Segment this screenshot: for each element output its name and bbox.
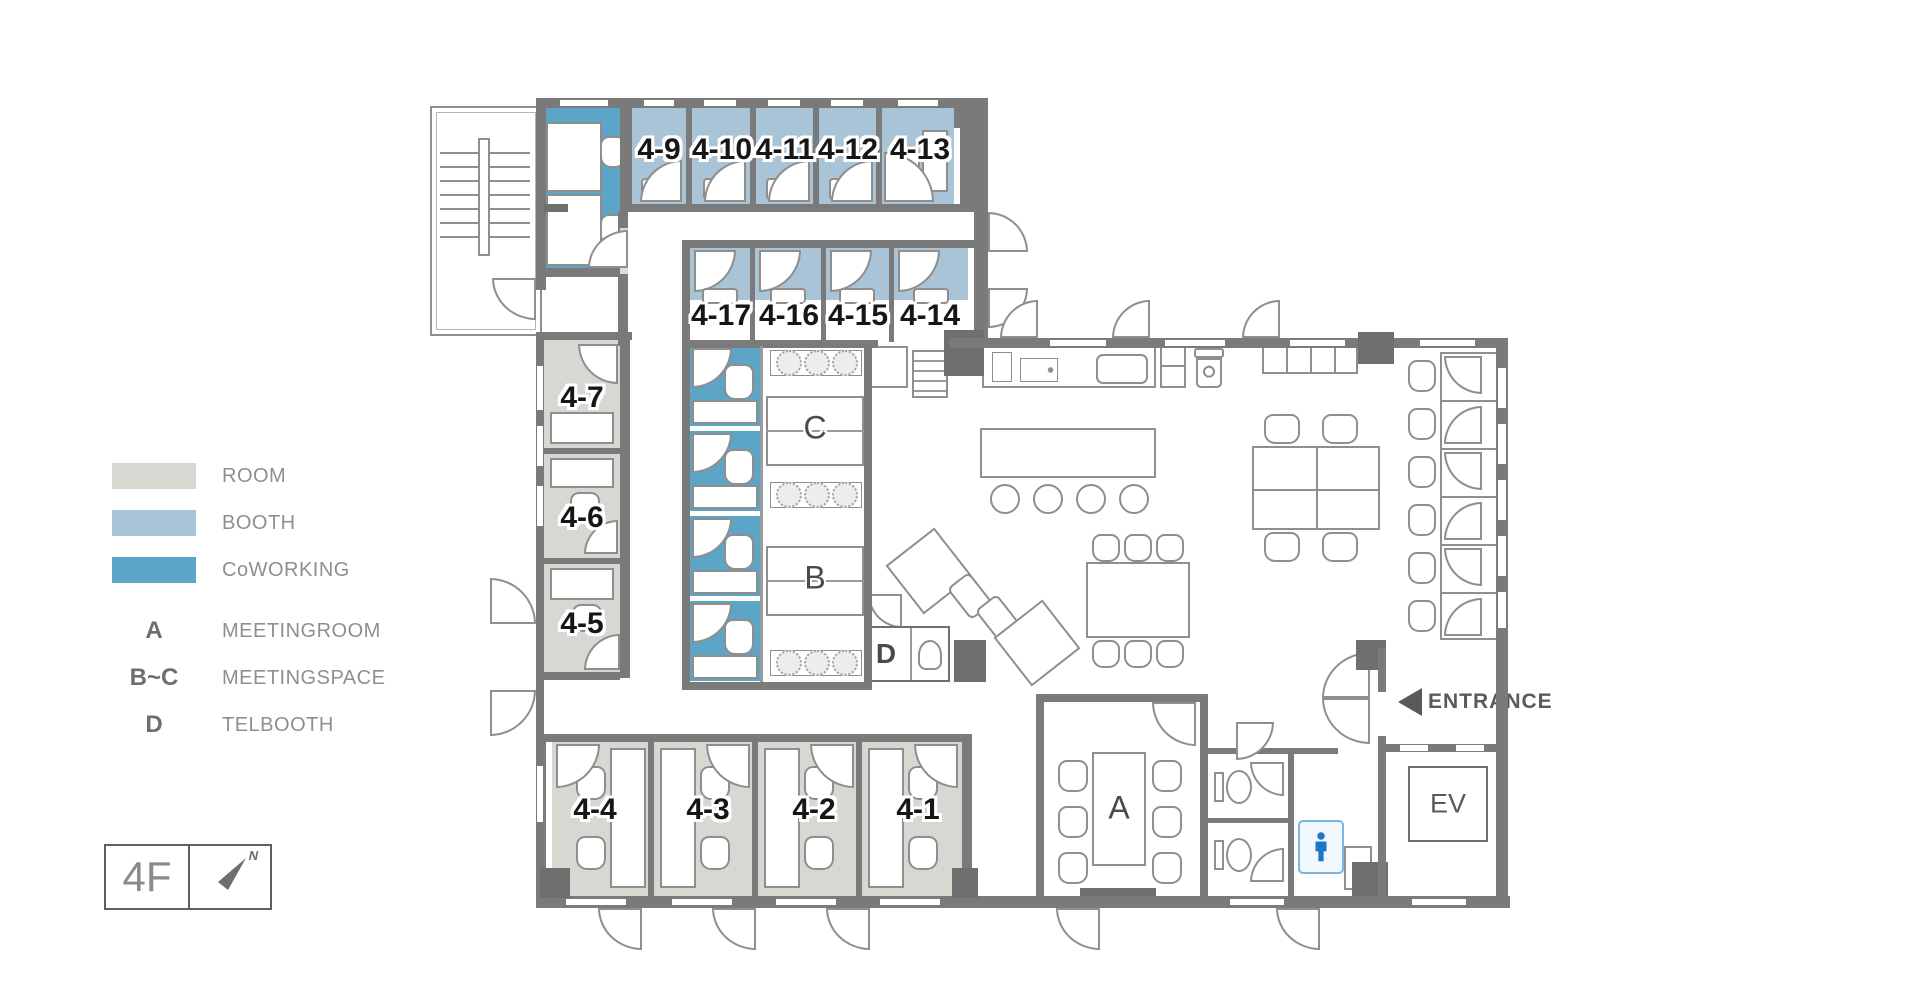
chair: [1322, 532, 1358, 562]
room-label: 4-3: [686, 793, 729, 827]
door-arc: [1250, 848, 1284, 882]
window: [1456, 745, 1484, 751]
wall: [682, 682, 872, 690]
door-arc: [988, 212, 1028, 252]
chair: [1408, 360, 1436, 392]
wall: [1208, 748, 1338, 754]
legend-item-room: ROOM: [112, 463, 412, 489]
plant-icon: [832, 350, 858, 376]
window: [704, 100, 736, 106]
chair: [918, 640, 942, 670]
copier-icon: [912, 350, 948, 398]
legend-item-booth: BOOTH: [112, 510, 412, 536]
door-arc: [1112, 300, 1150, 338]
room-label: 4-2: [792, 793, 835, 827]
wall: [682, 240, 690, 346]
room-color-swatch: [112, 463, 196, 489]
window: [1050, 340, 1106, 346]
chair: [724, 619, 754, 655]
door-arc: [598, 908, 642, 950]
chair: [1408, 504, 1436, 536]
coworking-color-swatch: [112, 557, 196, 583]
room-label: 4-1: [896, 793, 939, 827]
wall-block: [954, 640, 986, 682]
room-label: 4-17: [691, 299, 751, 333]
room-label: 4-6: [560, 501, 603, 535]
restroom-men-icon: [1298, 820, 1344, 874]
wall: [856, 742, 862, 902]
wall-block: [1358, 332, 1394, 364]
locker-shelf: [1262, 344, 1358, 374]
wall: [1200, 694, 1208, 902]
desk: [692, 400, 758, 424]
room-label: 4-11: [756, 133, 814, 167]
door-arc: [712, 908, 756, 950]
wall: [752, 742, 758, 902]
room-label: 4-16: [759, 299, 819, 333]
key-label: MEETINGSPACE: [222, 667, 385, 690]
chair: [1092, 640, 1120, 668]
room-label: 4-15: [828, 299, 888, 333]
wall: [628, 204, 988, 212]
chair: [724, 364, 754, 400]
desk: [692, 655, 758, 679]
key-letter: B~C: [112, 664, 196, 692]
wall: [682, 240, 974, 248]
stool-chair: [990, 484, 1020, 514]
room-label: 4-5: [560, 607, 603, 641]
window: [898, 100, 938, 106]
plant-icon: [776, 350, 802, 376]
window: [768, 100, 800, 106]
wall: [536, 268, 628, 277]
chair: [1322, 414, 1358, 444]
window: [1498, 424, 1506, 464]
telbooth-label: D: [876, 638, 896, 670]
legend-key-d: D TELBOOTH: [112, 711, 412, 739]
room-label: 4-10: [692, 133, 752, 167]
room-label: 4-13: [890, 133, 950, 167]
chair: [700, 836, 730, 870]
wall: [648, 742, 654, 902]
window: [1412, 899, 1466, 905]
door-arc: [490, 578, 536, 624]
wall: [620, 332, 630, 678]
chair: [1058, 760, 1088, 792]
plant-icon: [776, 650, 802, 676]
desk: [550, 412, 614, 444]
window: [537, 486, 543, 526]
microwave-icon: [1020, 358, 1058, 382]
key-letter: A: [112, 617, 196, 645]
wall: [626, 104, 632, 204]
floor-label: 4F: [106, 846, 190, 908]
chair: [1152, 852, 1182, 884]
chair: [1264, 532, 1300, 562]
door-arc: [868, 594, 902, 628]
legend-label: BOOTH: [222, 512, 296, 535]
window: [644, 100, 674, 106]
entrance-arrow-icon: [1398, 688, 1422, 716]
wall: [889, 248, 894, 342]
door-arc: [826, 908, 870, 950]
window: [776, 899, 836, 905]
chair: [1408, 552, 1436, 584]
six-seat-table: [1086, 562, 1190, 638]
window: [566, 899, 626, 905]
meeting-space-b-label: B: [804, 560, 825, 597]
door-arc: [1236, 722, 1274, 760]
wall: [682, 348, 690, 690]
window: [1498, 536, 1506, 576]
wall-block: [952, 868, 978, 898]
chair: [576, 836, 606, 870]
room-label: 4-7: [560, 381, 603, 415]
toilet-icon: [1214, 772, 1224, 802]
window: [1165, 340, 1225, 346]
window: [1400, 745, 1428, 751]
four-seat-table: [1252, 446, 1380, 530]
wall: [1036, 694, 1208, 702]
chair: [1408, 456, 1436, 488]
key-label: TELBOOTH: [222, 714, 334, 737]
booth-color-swatch: [112, 510, 196, 536]
wall: [1208, 818, 1292, 823]
legend-label: CoWORKING: [222, 559, 350, 582]
window: [1498, 368, 1506, 408]
desk: [550, 458, 614, 488]
room-label: 4-12: [818, 133, 878, 167]
desk: [550, 568, 614, 600]
legend-key-a: A MEETINGROOM: [112, 617, 412, 645]
door-arc: [1056, 908, 1100, 950]
door-arc: [1152, 702, 1196, 746]
window: [672, 899, 732, 905]
wall: [536, 332, 632, 340]
door-arc: [490, 690, 536, 736]
water-cup-icon: [992, 352, 1012, 382]
plant-icon: [832, 482, 858, 508]
window: [1290, 340, 1345, 346]
compass: N: [190, 846, 270, 908]
plant-icon: [804, 482, 830, 508]
toilet-icon: [1226, 770, 1252, 804]
long-table: [980, 428, 1156, 478]
chair: [1058, 806, 1088, 838]
legend-item-coworking: CoWORKING: [112, 557, 412, 583]
wall-block: [544, 204, 568, 212]
room-label: 4-14: [900, 299, 960, 333]
chair: [724, 449, 754, 485]
table: [1194, 348, 1224, 358]
legend-key-bc: B~C MEETINGSPACE: [112, 664, 412, 692]
chair: [1058, 852, 1088, 884]
carrel-column: [1440, 352, 1498, 640]
wall: [864, 346, 872, 690]
plant-icon: [776, 482, 802, 508]
key-label: MEETINGROOM: [222, 620, 381, 643]
window: [1420, 340, 1475, 346]
window: [1230, 899, 1284, 905]
chair: [1152, 760, 1182, 792]
desk: [692, 570, 758, 594]
door-arc: [1322, 698, 1370, 744]
meeting-room-a-label: A: [1108, 790, 1129, 827]
wall: [1378, 752, 1386, 898]
stool-chair: [1076, 484, 1106, 514]
plant-icon: [804, 650, 830, 676]
stool-chair: [1119, 484, 1149, 514]
chair: [1408, 600, 1436, 632]
entrance-label: ENTRANCE: [1428, 690, 1553, 714]
chair: [1408, 408, 1436, 440]
chair: [1124, 534, 1152, 562]
fridge-icon: [1160, 344, 1186, 388]
meeting-space-c-label: C: [803, 410, 826, 447]
chair: [908, 836, 938, 870]
divider-line: [910, 628, 912, 680]
floor-tag: 4F N: [104, 844, 272, 910]
chair: [1092, 534, 1120, 562]
elevator-label: EV: [1430, 789, 1466, 820]
wall: [544, 558, 620, 564]
room-label: 4-4: [573, 793, 616, 827]
chair: [1264, 414, 1300, 444]
wall: [821, 248, 826, 342]
window: [537, 426, 543, 466]
chair: [804, 836, 834, 870]
wall: [1378, 648, 1386, 692]
desk: [546, 122, 602, 192]
toilet-icon: [1226, 838, 1252, 872]
wall: [682, 340, 878, 348]
desk: [692, 485, 758, 509]
stair-rail: [478, 138, 490, 256]
chair: [1124, 640, 1152, 668]
window: [1498, 592, 1506, 628]
wall: [544, 672, 620, 680]
plant-icon: [804, 350, 830, 376]
wall: [536, 98, 546, 290]
window: [1498, 480, 1506, 520]
chair: [1152, 806, 1182, 838]
table: [1196, 358, 1222, 388]
wall: [974, 98, 988, 346]
window: [560, 100, 608, 106]
wall-block: [540, 868, 570, 898]
window: [537, 366, 543, 410]
wall: [544, 448, 620, 454]
legend-label: ROOM: [222, 465, 286, 488]
wall: [1288, 748, 1294, 896]
divider-line: [760, 346, 763, 690]
wall: [1036, 694, 1044, 902]
plant-icon: [832, 650, 858, 676]
door-arc: [1276, 908, 1320, 950]
door-arc: [1242, 300, 1280, 338]
wall: [1378, 744, 1506, 752]
window: [880, 899, 940, 905]
legend: ROOM BOOTH CoWORKING A MEETINGROOM B~C M…: [112, 463, 412, 758]
window: [537, 766, 543, 822]
wall-block: [944, 330, 984, 376]
toilet-icon: [1214, 840, 1224, 870]
chair: [1156, 534, 1184, 562]
stool-chair: [1033, 484, 1063, 514]
wall: [544, 734, 972, 742]
room-label: 4-9: [637, 133, 680, 167]
door-arc: [1250, 762, 1284, 796]
floor-plan: ROOM BOOTH CoWORKING A MEETINGROOM B~C M…: [0, 0, 1920, 1000]
window: [831, 100, 863, 106]
sink-icon: [1096, 354, 1148, 384]
wall: [1496, 650, 1508, 902]
chair: [724, 534, 754, 570]
key-letter: D: [112, 711, 196, 739]
chair: [1156, 640, 1184, 668]
